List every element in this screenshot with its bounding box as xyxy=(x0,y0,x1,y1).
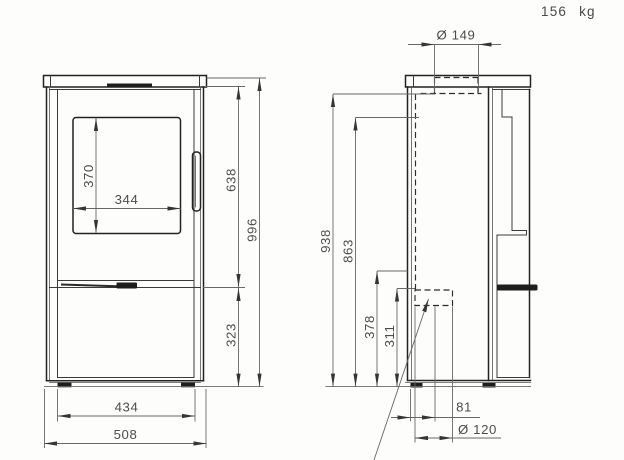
dim-glass-height: 370 xyxy=(81,118,98,233)
dim-base-height: 323 xyxy=(224,288,241,387)
side-top-flue-collar-hidden xyxy=(421,78,482,94)
dim-glass-height-label: 370 xyxy=(81,164,96,188)
dim-glass-width: 344 xyxy=(73,192,181,211)
dim-total-width: 508 xyxy=(44,427,207,446)
rear-outlet-leader xyxy=(374,299,429,460)
dim-feet-width-label: 434 xyxy=(115,400,139,415)
dim-rear-outlet-diameter: Ø 120 xyxy=(415,422,501,440)
dim-top-flue-diameter: Ø 149 xyxy=(408,28,501,93)
dim-flue-rear-height-label: 863 xyxy=(341,239,356,263)
dim-rear-outlet-top-height: 378 xyxy=(362,271,379,387)
side-rear-outlet-hidden xyxy=(415,290,453,306)
dim-base-height-label: 323 xyxy=(224,323,239,347)
front-dimensions: 370 344 638 996 323 xyxy=(44,78,266,448)
front-air-slot xyxy=(107,84,152,87)
dim-glass-width-label: 344 xyxy=(115,192,139,207)
front-ash-door-latch xyxy=(117,283,138,289)
dim-rear-outlet-diameter-label: Ø 120 xyxy=(458,422,497,437)
dim-rear-outlet-bottom-height: 311 xyxy=(382,289,399,387)
dim-rear-outlet-offset-label: 81 xyxy=(456,400,472,415)
dim-rear-outlet-bottom-height-label: 311 xyxy=(382,325,397,348)
dim-door-top-height: 638 xyxy=(224,87,241,288)
dim-rear-outlet-top-height-label: 378 xyxy=(362,315,377,339)
side-door-handle xyxy=(497,285,538,291)
dim-rear-outlet-offset: 81 xyxy=(391,400,480,420)
dim-feet-width: 434 xyxy=(58,400,196,419)
dim-total-height: 996 xyxy=(245,78,262,387)
dim-top-flue-diameter-label: Ø 149 xyxy=(437,28,476,43)
technical-drawing-page: 370 344 638 996 323 xyxy=(0,0,624,460)
dim-flue-top-height-label: 938 xyxy=(318,229,333,253)
dim-flue-rear-height: 863 xyxy=(341,118,358,387)
dim-total-width-label: 508 xyxy=(114,427,138,442)
dim-door-top-height-label: 638 xyxy=(224,168,239,192)
front-ash-lip xyxy=(61,285,117,287)
front-view xyxy=(44,76,207,388)
stove-dimension-drawing: 370 344 638 996 323 xyxy=(0,0,624,460)
dim-flue-top-height: 938 xyxy=(318,94,335,387)
dim-total-height-label: 996 xyxy=(245,218,260,242)
weight-label: 156 kg xyxy=(541,4,596,19)
